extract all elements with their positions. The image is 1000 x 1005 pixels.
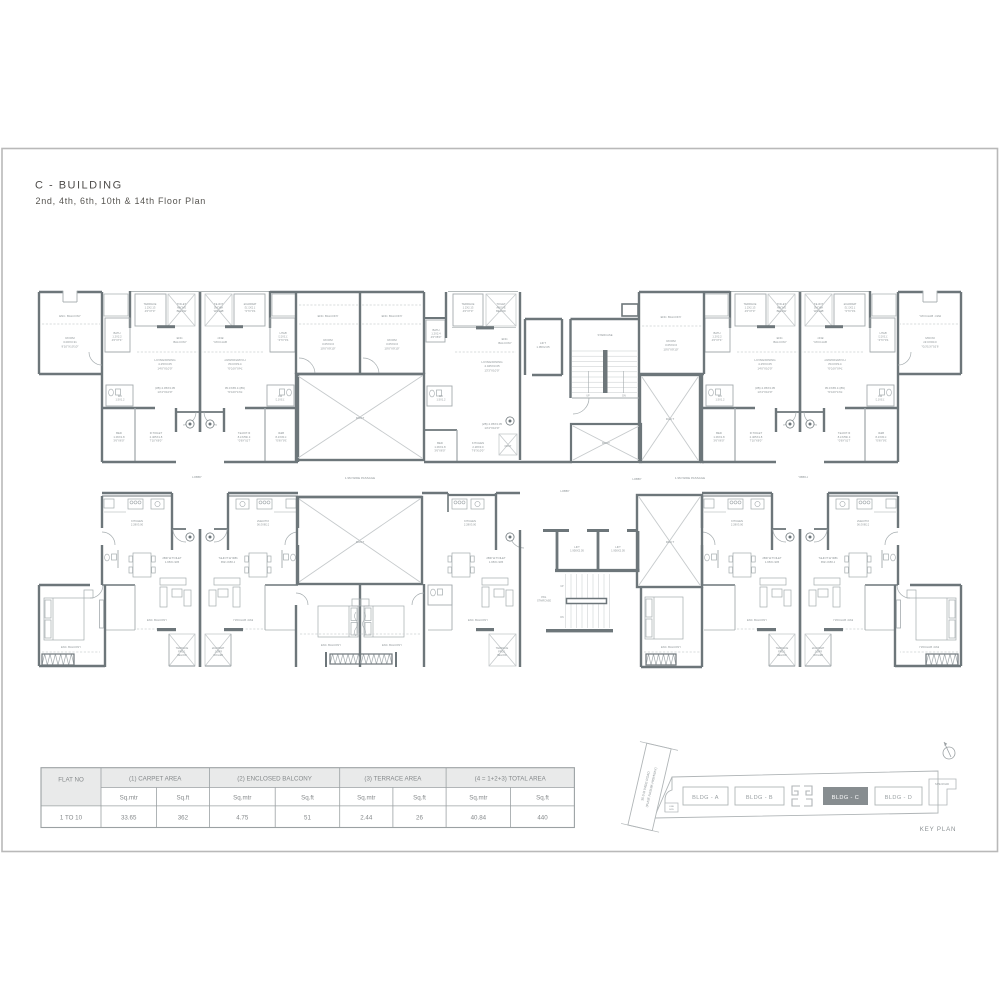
svg-text:TOILET: TOILET bbox=[177, 302, 187, 306]
svg-text:(4 = 1+2+3) TOTAL AREA: (4 = 1+2+3) TOTAL AREA bbox=[475, 776, 547, 783]
svg-text:UP: UP bbox=[560, 586, 564, 588]
svg-text:Sq.mtr: Sq.mtr bbox=[357, 795, 375, 802]
svg-text:1.9M WIDE PASSAGE: 1.9M WIDE PASSAGE bbox=[345, 476, 375, 480]
svg-text:Sq.ft: Sq.ft bbox=[301, 795, 314, 802]
svg-text:STAIRCASE: STAIRCASE bbox=[537, 599, 551, 602]
svg-text:TERRACE: TERRACE bbox=[462, 302, 475, 306]
svg-text:4'0"X8'0": 4'0"X8'0" bbox=[431, 335, 442, 339]
svg-text:BLDG - A: BLDG - A bbox=[692, 795, 719, 801]
svg-text:ENC. BALCONY: ENC. BALCONY bbox=[61, 645, 81, 649]
svg-text:TERRACE: TERRACE bbox=[144, 302, 157, 306]
svg-text:BALCONY: BALCONY bbox=[498, 341, 512, 345]
svg-text:WC: WC bbox=[118, 394, 122, 398]
svg-text:DUCT: DUCT bbox=[666, 540, 674, 544]
svg-text:1.95X1.905: 1.95X1.905 bbox=[489, 560, 504, 564]
svg-text:Sq.ft: Sq.ft bbox=[177, 795, 190, 802]
svg-text:Sq.mtr: Sq.mtr bbox=[469, 795, 487, 802]
svg-text:33.65: 33.65 bbox=[121, 815, 137, 822]
svg-text:13'3"X10'0": 13'3"X10'0" bbox=[484, 368, 499, 372]
svg-text:BATH: BATH bbox=[114, 331, 121, 335]
svg-text:2nd, 4th, 6th, 10th & 14th Flo: 2nd, 4th, 6th, 10th & 14th Floor Plan bbox=[36, 196, 207, 206]
svg-text:B/05: B/05 bbox=[669, 809, 674, 811]
svg-text:LOBBY: LOBBY bbox=[632, 477, 641, 481]
svg-text:Sq.mtr: Sq.mtr bbox=[120, 795, 138, 802]
svg-text:Sq.ft: Sq.ft bbox=[413, 795, 426, 802]
svg-text:2.28X3.00: 2.28X3.00 bbox=[131, 523, 144, 527]
svg-text:KEY PLAN: KEY PLAN bbox=[920, 826, 957, 833]
svg-text:7'6"X10'0": 7'6"X10'0" bbox=[472, 449, 485, 453]
svg-text:LOBBY: LOBBY bbox=[560, 489, 569, 493]
svg-text:26: 26 bbox=[416, 815, 423, 822]
svg-text:LIFT: LIFT bbox=[574, 545, 580, 549]
svg-text:ABOVE: ABOVE bbox=[177, 306, 186, 310]
svg-text:1.950X2.05: 1.950X2.05 bbox=[611, 549, 625, 553]
svg-text:Sq.mtr: Sq.mtr bbox=[233, 795, 251, 802]
svg-text:ABOVE: ABOVE bbox=[496, 306, 505, 310]
svg-text:FLAT NO: FLAT NO bbox=[58, 777, 84, 784]
svg-text:10'0"X9'10": 10'0"X9'10" bbox=[320, 346, 335, 350]
svg-text:BELOW: BELOW bbox=[496, 309, 506, 313]
svg-text:1.2X2.4: 1.2X2.4 bbox=[431, 332, 441, 336]
svg-text:3'6"X6'0": 3'6"X6'0" bbox=[434, 449, 445, 453]
svg-text:DUCT: DUCT bbox=[666, 417, 674, 421]
svg-text:ENC. BALCONY: ENC. BALCONY bbox=[318, 314, 339, 318]
svg-text:ENC. BALCONY: ENC. BALCONY bbox=[382, 314, 403, 318]
svg-text:2.28X3.00: 2.28X3.00 bbox=[464, 523, 477, 527]
svg-text:10'0"X9'10": 10'0"X9'10" bbox=[663, 347, 678, 351]
svg-text:2.44: 2.44 bbox=[360, 815, 373, 822]
svg-text:PROJ.: PROJ. bbox=[498, 649, 506, 653]
svg-text:BLDG - B: BLDG - B bbox=[746, 795, 773, 801]
svg-text:BLDG - D: BLDG - D bbox=[885, 795, 912, 801]
svg-text:1.2X2.13: 1.2X2.13 bbox=[463, 306, 474, 310]
svg-text:TOILET: TOILET bbox=[496, 302, 506, 306]
svg-text:LOBBY: LOBBY bbox=[192, 475, 202, 479]
svg-text:BLDG - C: BLDG - C bbox=[832, 795, 859, 801]
svg-text:(3) TERRACE AREA: (3) TERRACE AREA bbox=[364, 776, 422, 783]
svg-text:LINE: LINE bbox=[669, 806, 674, 808]
svg-text:1.2X2.13: 1.2X2.13 bbox=[145, 306, 156, 310]
svg-text:DN: DN bbox=[560, 617, 564, 619]
svg-text:13'4"X10'0": 13'4"X10'0" bbox=[157, 390, 172, 394]
svg-text:440: 440 bbox=[537, 815, 548, 822]
svg-text:STAIRCASE: STAIRCASE bbox=[597, 333, 612, 337]
svg-text:14'0"X10'0": 14'0"X10'0" bbox=[157, 366, 172, 370]
svg-text:WC: WC bbox=[439, 394, 443, 398]
svg-text:(1) CARPET AREA: (1) CARPET AREA bbox=[129, 776, 182, 783]
svg-text:TERRACE: TERRACE bbox=[496, 646, 509, 650]
svg-text:LIFT: LIFT bbox=[615, 545, 621, 549]
svg-text:SITE ROAD: SITE ROAD bbox=[935, 782, 949, 786]
svg-text:UP: UP bbox=[586, 395, 590, 398]
svg-text:ENC. BALCONY: ENC. BALCONY bbox=[382, 643, 402, 647]
svg-text:4'0"X7'0": 4'0"X7'0" bbox=[463, 309, 474, 313]
svg-text:PROJ.: PROJ. bbox=[178, 649, 186, 653]
svg-text:(2) ENCLOSED BALCONY: (2) ENCLOSED BALCONY bbox=[237, 776, 312, 783]
svg-text:3'6"X6'0": 3'6"X6'0" bbox=[113, 439, 124, 443]
svg-text:1.950X2.05: 1.950X2.05 bbox=[570, 549, 584, 553]
svg-text:TERRACE: TERRACE bbox=[176, 646, 189, 650]
svg-text:DUCT: DUCT bbox=[356, 540, 364, 544]
svg-text:7'10"X6'0": 7'10"X6'0" bbox=[150, 439, 163, 443]
svg-text:DUCT: DUCT bbox=[356, 416, 364, 420]
svg-text:DUCT: DUCT bbox=[602, 441, 610, 445]
svg-text:BELOW: BELOW bbox=[497, 653, 507, 657]
svg-text:1.5X1.2: 1.5X1.2 bbox=[116, 397, 125, 401]
svg-text:1.2X2.2: 1.2X2.2 bbox=[112, 335, 122, 339]
svg-text:1.95X1.905: 1.95X1.905 bbox=[165, 560, 180, 564]
svg-text:Sq.ft: Sq.ft bbox=[536, 795, 549, 802]
svg-text:4'0"X7'0": 4'0"X7'0" bbox=[145, 309, 156, 313]
svg-text:ENC. BALCONY: ENC. BALCONY bbox=[661, 315, 682, 319]
svg-text:40.84: 40.84 bbox=[471, 815, 487, 822]
svg-text:BATH: BATH bbox=[433, 328, 440, 332]
svg-text:51: 51 bbox=[304, 815, 311, 822]
svg-text:10'0"X9'10": 10'0"X9'10" bbox=[384, 346, 399, 350]
svg-text:ENC. BALCONY: ENC. BALCONY bbox=[147, 618, 167, 622]
svg-text:KITCHEN: KITCHEN bbox=[131, 519, 143, 523]
svg-text:ENC. BALCONY: ENC. BALCONY bbox=[661, 645, 681, 649]
svg-text:4.75: 4.75 bbox=[236, 815, 249, 822]
svg-text:DUCT: DUCT bbox=[505, 445, 512, 448]
svg-text:4'0"X7'4": 4'0"X7'4" bbox=[112, 338, 123, 342]
svg-text:13'4"X10'0": 13'4"X10'0" bbox=[484, 426, 499, 430]
svg-text:ENC. BALCONY: ENC. BALCONY bbox=[321, 643, 341, 647]
svg-text:C - BUILDING: C - BUILDING bbox=[35, 180, 123, 192]
svg-text:ENC. BALCONY: ENC. BALCONY bbox=[468, 618, 488, 622]
svg-text:1.5X1.2: 1.5X1.2 bbox=[437, 397, 446, 401]
svg-text:BELOW: BELOW bbox=[177, 653, 187, 657]
svg-text:KITCHEN: KITCHEN bbox=[464, 519, 476, 523]
svg-text:362: 362 bbox=[178, 815, 189, 822]
svg-text:1.9M WIDE PASSAGE: 1.9M WIDE PASSAGE bbox=[675, 476, 705, 480]
svg-text:BELOW: BELOW bbox=[177, 309, 187, 313]
svg-text:1 TO 10: 1 TO 10 bbox=[60, 815, 83, 822]
svg-text:ENC. BALCONY: ENC. BALCONY bbox=[59, 314, 81, 318]
svg-text:1.95X2.05: 1.95X2.05 bbox=[536, 345, 550, 349]
svg-text:DN: DN bbox=[622, 395, 626, 398]
svg-text:BALCONY: BALCONY bbox=[173, 340, 187, 344]
svg-text:9'10"X10'10": 9'10"X10'10" bbox=[62, 344, 79, 348]
